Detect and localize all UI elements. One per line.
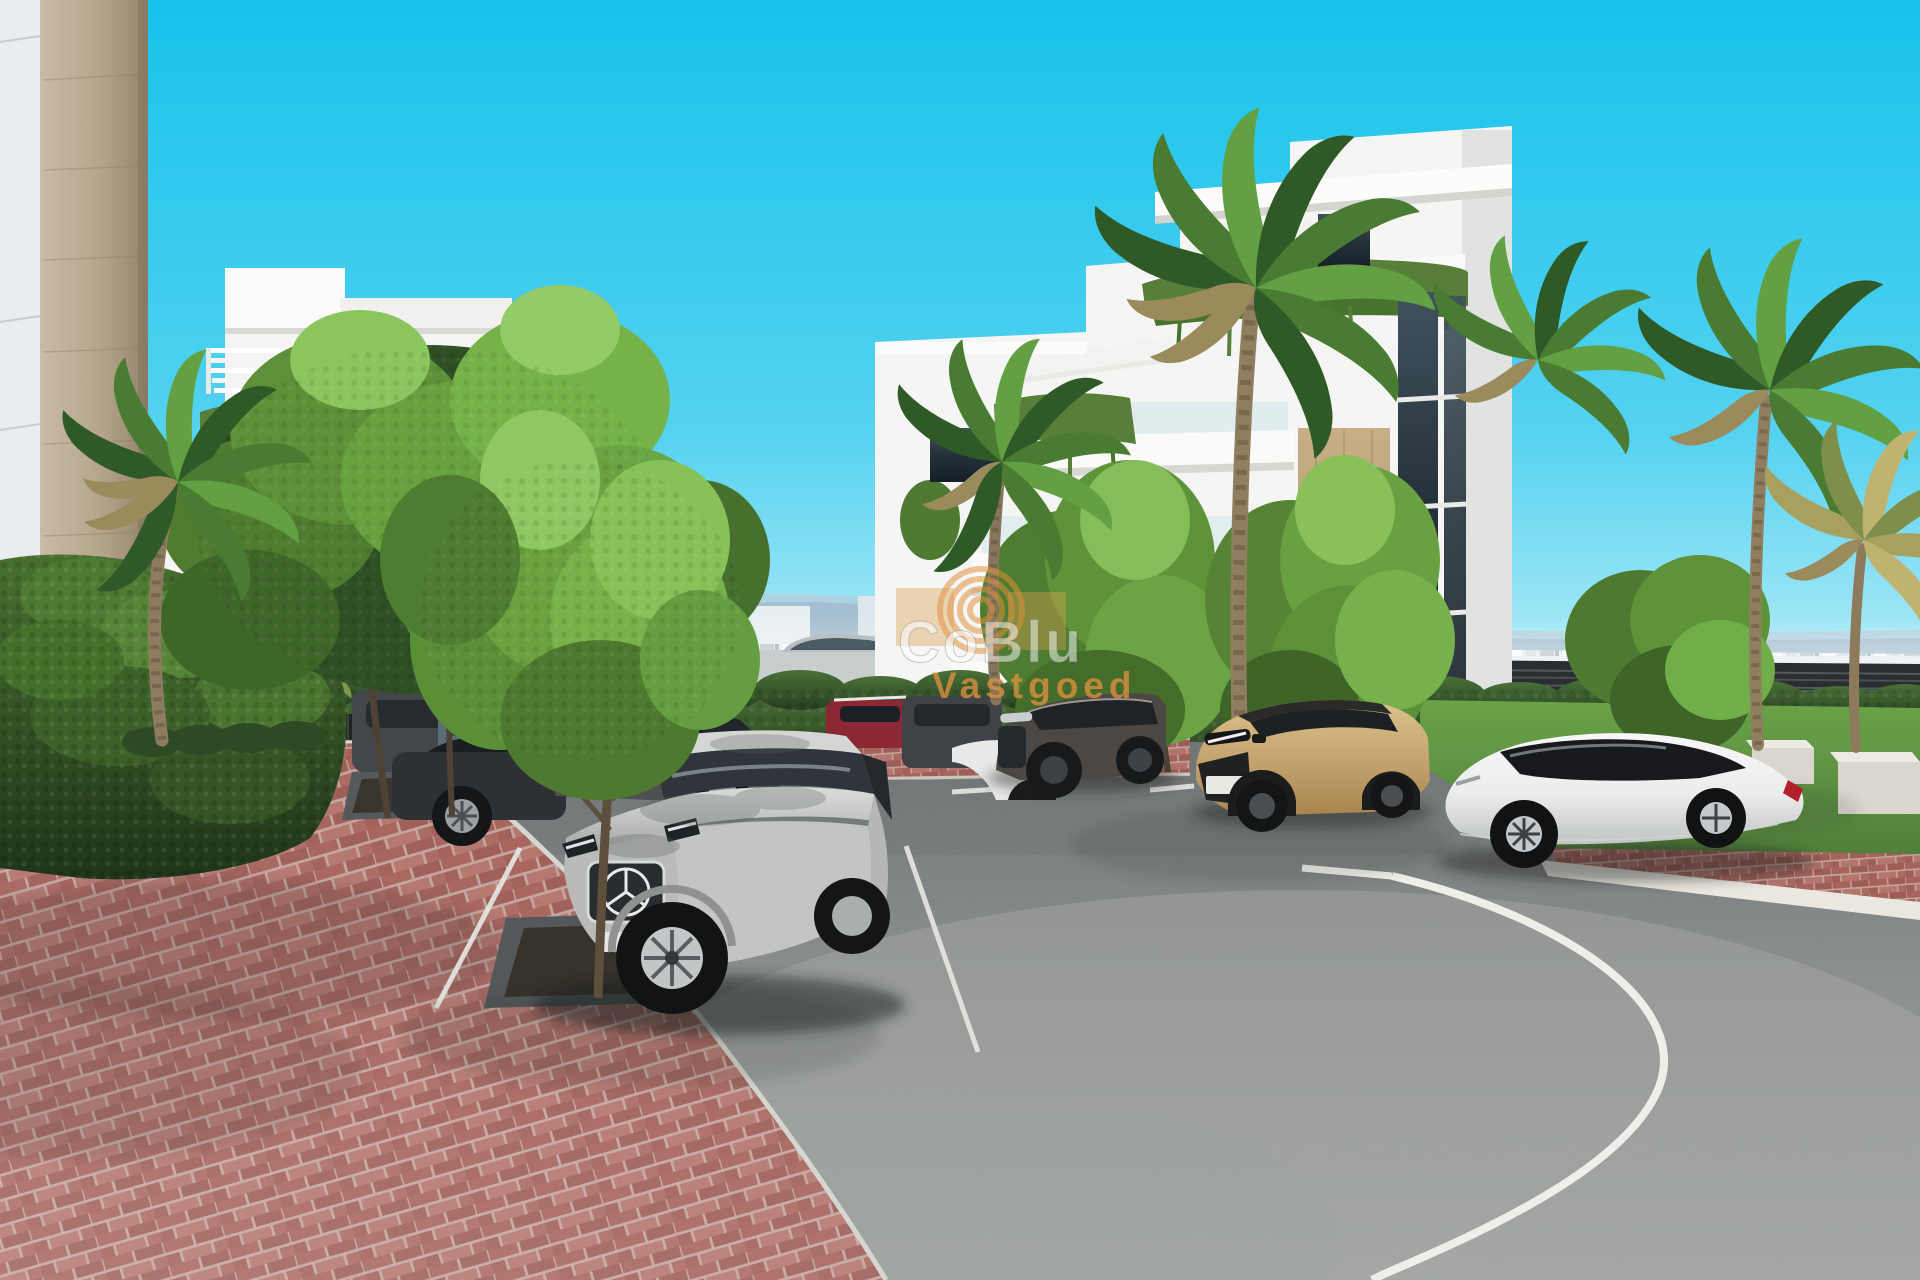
scene-render: CoBlu Vastgoed (0, 0, 1920, 1280)
suv-rear-rim (832, 896, 872, 936)
render-viewport: CoBlu Vastgoed (0, 0, 1920, 1280)
rim-cap (665, 951, 679, 965)
watermark-subtitle: Vastgoed (932, 665, 1137, 706)
right-face-shade (1462, 130, 1512, 730)
left-wing-parapet (875, 342, 1086, 354)
